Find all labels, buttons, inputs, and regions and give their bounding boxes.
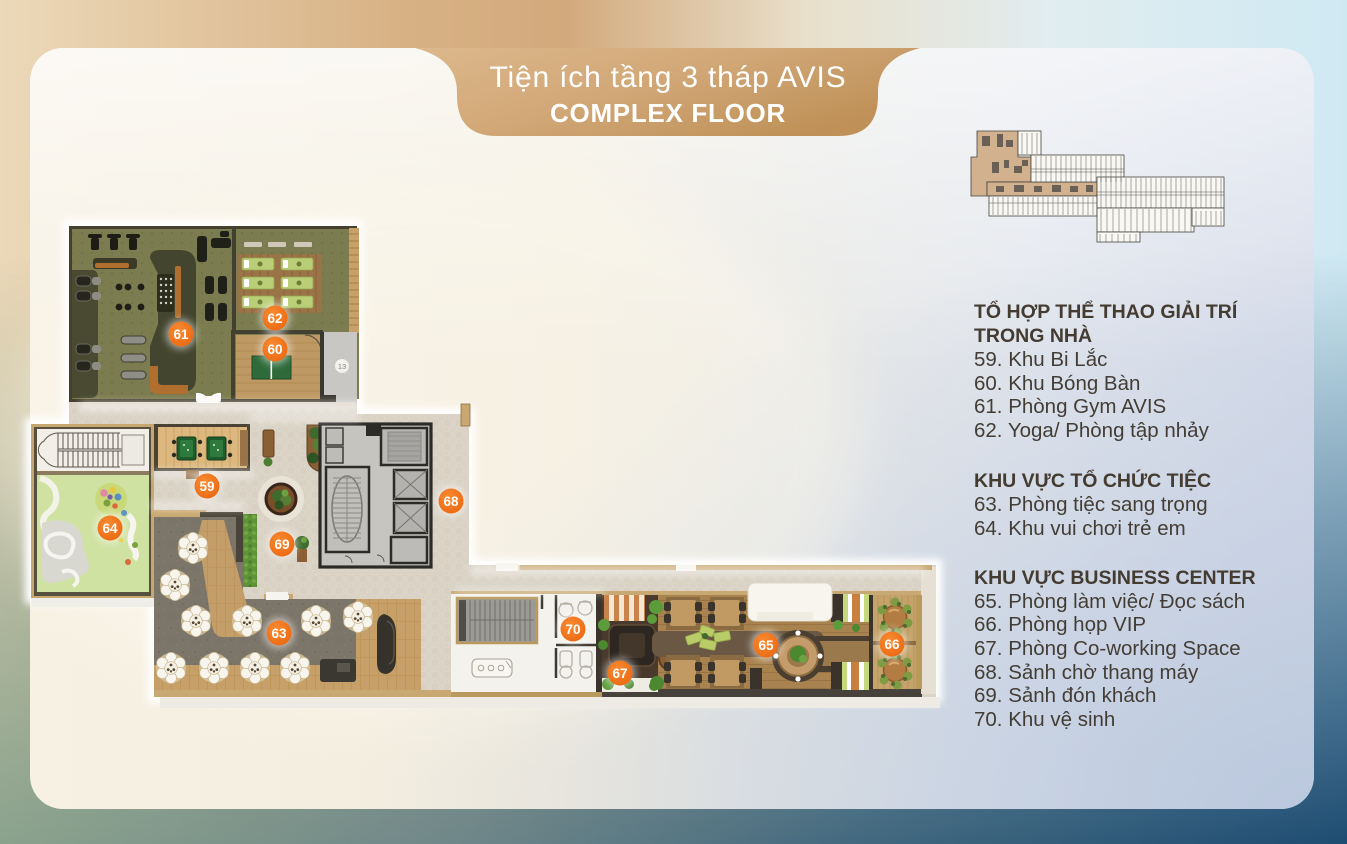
- svg-text:69. Sảnh đón khách: 69. Sảnh đón khách: [974, 684, 1156, 707]
- svg-text:68: 68: [443, 494, 459, 509]
- svg-text:61: 61: [173, 327, 189, 342]
- svg-text:KHU VỰC TỔ CHỨC TIỆC: KHU VỰC TỔ CHỨC TIỆC: [974, 468, 1211, 492]
- svg-text:67: 67: [612, 666, 627, 681]
- svg-text:63: 63: [271, 626, 287, 641]
- svg-text:59. Khu Bi Lắc: 59. Khu Bi Lắc: [974, 348, 1107, 371]
- svg-text:66. Phòng họp VIP: 66. Phòng họp VIP: [974, 613, 1146, 636]
- svg-text:KHU VỰC BUSINESS CENTER: KHU VỰC BUSINESS CENTER: [974, 567, 1256, 589]
- svg-text:61. Phòng Gym AVIS: 61. Phòng Gym AVIS: [974, 395, 1166, 418]
- svg-text:63. Phòng tiệc sang trọng: 63. Phòng tiệc sang trọng: [974, 493, 1208, 516]
- svg-text:13: 13: [338, 362, 346, 371]
- svg-text:TRONG NHÀ: TRONG NHÀ: [974, 324, 1092, 347]
- svg-text:62. Yoga/ Phòng tập nhảy: 62. Yoga/ Phòng tập nhảy: [974, 419, 1210, 442]
- svg-text:Tiện ích tầng 3 tháp AVIS: Tiện ích tầng 3 tháp AVIS: [490, 61, 847, 94]
- svg-text:70. Khu vệ sinh: 70. Khu vệ sinh: [974, 708, 1115, 731]
- svg-text:69: 69: [274, 537, 289, 552]
- svg-text:67. Phòng Co-working Space: 67. Phòng Co-working Space: [974, 637, 1241, 660]
- svg-text:60: 60: [267, 342, 282, 357]
- svg-text:65: 65: [758, 638, 774, 653]
- svg-text:TỔ HỢP THỂ THAO GIẢI TRÍ: TỔ HỢP THỂ THAO GIẢI TRÍ: [974, 299, 1238, 323]
- svg-text:59: 59: [199, 479, 214, 494]
- svg-text:60. Khu Bóng Bàn: 60. Khu Bóng Bàn: [974, 372, 1140, 395]
- svg-text:64: 64: [102, 521, 118, 536]
- svg-text:66: 66: [884, 637, 900, 652]
- svg-text:62: 62: [267, 311, 282, 326]
- svg-text:COMPLEX FLOOR: COMPLEX FLOOR: [550, 98, 786, 128]
- svg-text:65. Phòng làm việc/ Đọc sách: 65. Phòng làm việc/ Đọc sách: [974, 590, 1245, 613]
- svg-text:70: 70: [565, 622, 580, 637]
- svg-text:64. Khu vui chơi trẻ em: 64. Khu vui chơi trẻ em: [974, 517, 1186, 540]
- svg-text:68. Sảnh chờ thang máy: 68. Sảnh chờ thang máy: [974, 661, 1199, 684]
